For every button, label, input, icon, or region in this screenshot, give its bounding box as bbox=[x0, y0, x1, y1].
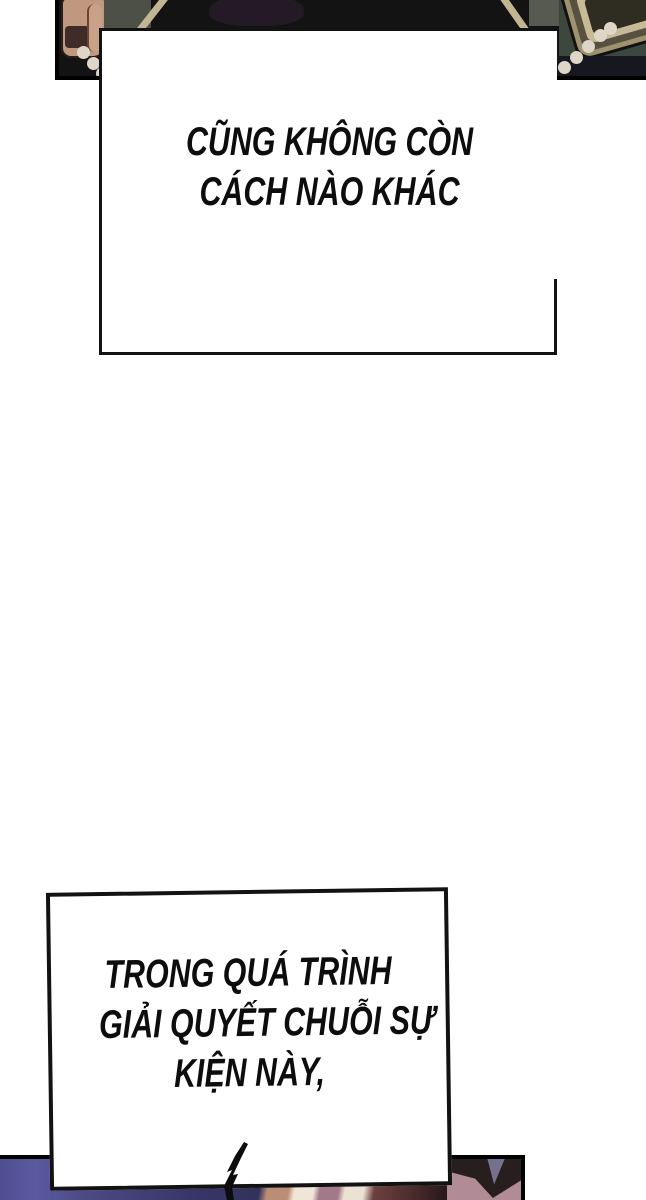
speech-line: CŨNG KHÔNG CÒN bbox=[157, 117, 503, 167]
speech-line: CÁCH NÀO KHÁC bbox=[157, 167, 503, 217]
panel-right-section bbox=[447, 1159, 521, 1200]
speech-box-1: CŨNG KHÔNG CÒN CÁCH NÀO KHÁC bbox=[99, 28, 557, 355]
dark-shape bbox=[447, 1159, 521, 1200]
speech-box-border-segment bbox=[554, 279, 557, 355]
speech-line: GIẢI QUYẾT CHUỖI SỰ bbox=[99, 996, 399, 1050]
bolt-mark-icon bbox=[218, 1142, 252, 1200]
comic-page: CŨNG KHÔNG CÒN CÁCH NÀO KHÁC TRONG QUÁ T… bbox=[0, 0, 646, 1200]
bead bbox=[558, 61, 571, 74]
bead bbox=[570, 51, 583, 64]
bead bbox=[77, 46, 90, 59]
bead bbox=[582, 40, 595, 53]
speech-text-1: CŨNG KHÔNG CÒN CÁCH NÀO KHÁC bbox=[102, 31, 557, 217]
speech-line: TRONG QUÁ TRÌNH bbox=[98, 946, 398, 1000]
speech-line: KIỆN NÀY, bbox=[99, 1046, 399, 1100]
clothing-shape bbox=[529, 0, 561, 26]
bead bbox=[594, 29, 607, 42]
speech-text-2: TRONG QUÁ TRÌNH GIẢI QUYẾT CHUỖI SỰ KIỆN… bbox=[50, 891, 447, 1100]
shadow-shape bbox=[209, 0, 304, 26]
